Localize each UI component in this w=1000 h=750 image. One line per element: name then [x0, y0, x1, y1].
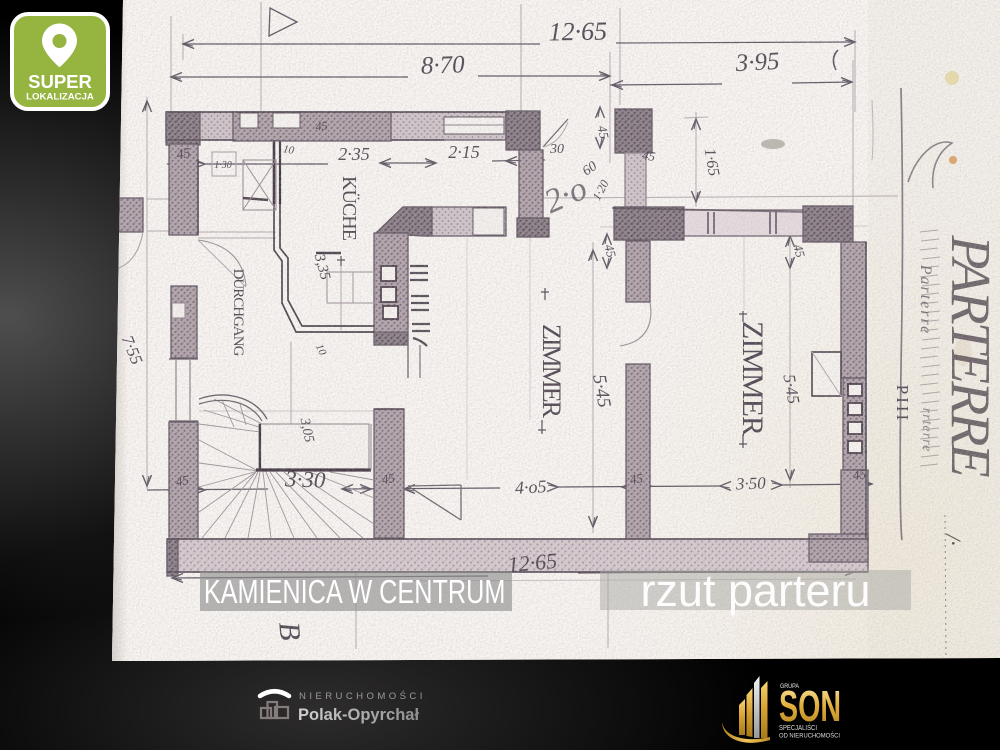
svg-text:Polak-Opyrchał: Polak-Opyrchał	[298, 706, 419, 724]
svg-text:SPECJALIŚCI: SPECJALIŚCI	[779, 723, 817, 732]
svg-text:NIERUCHOMOŚCI: NIERUCHOMOŚCI	[299, 690, 426, 702]
svg-text:LOKALIZACJA: LOKALIZACJA	[26, 92, 94, 103]
svg-text:SON: SON	[779, 682, 841, 731]
svg-text:SUPER: SUPER	[28, 71, 92, 92]
svg-text:OD NIERUCHOMOŚCI: OD NIERUCHOMOŚCI	[779, 731, 840, 740]
